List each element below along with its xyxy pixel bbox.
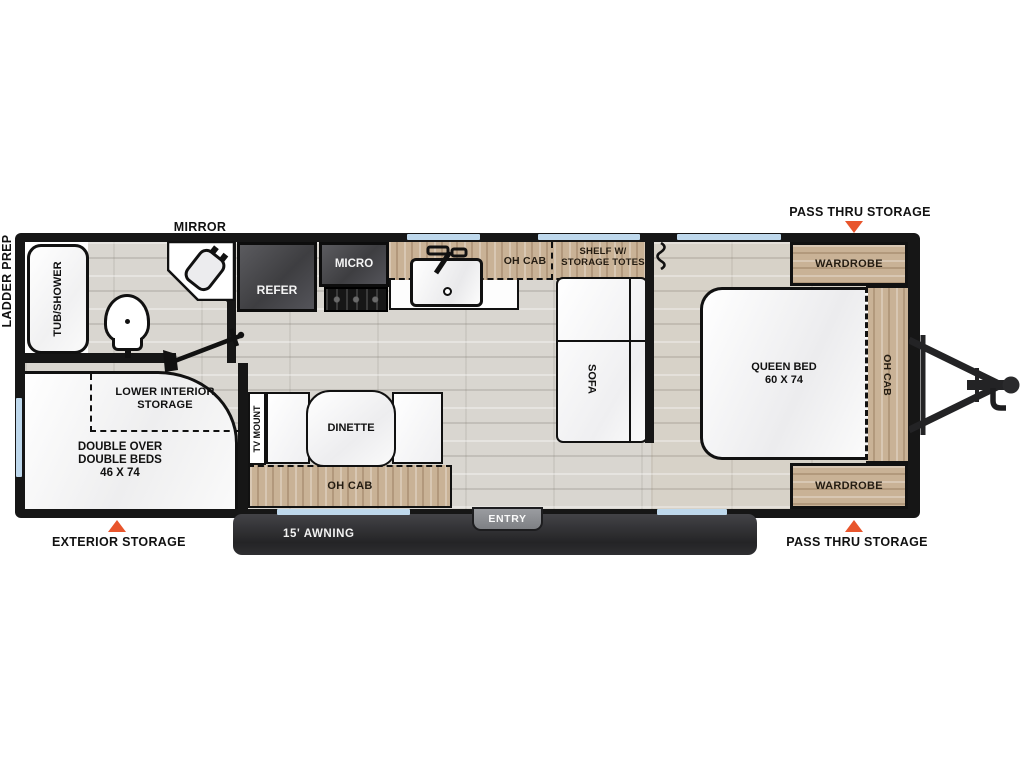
window-dinette	[277, 509, 410, 515]
kitchen-faucet-icon	[424, 243, 470, 275]
lower-interior-storage-label: LOWER INTERIOR STORAGE	[92, 386, 238, 411]
window-sofa	[538, 234, 640, 240]
tub-shower-label: TUB/SHOWER	[52, 261, 65, 336]
queen-bed-size: 60 X 74	[765, 374, 803, 387]
toilet	[104, 294, 150, 344]
queen-bed-label: QUEEN BED	[751, 361, 816, 374]
tv-mount: TV MOUNT	[248, 392, 266, 465]
tub-shower: TUB/SHOWER	[27, 244, 89, 354]
sofa: SOFA	[556, 277, 648, 443]
storage-marker-bottom-icon	[845, 520, 863, 532]
microwave: MICRO	[319, 242, 389, 287]
queen-bed: QUEEN BED 60 X 74	[700, 287, 868, 460]
pass-thru-storage-top-label: PASS THRU STORAGE	[760, 205, 960, 219]
refrigerator-label: REFER	[257, 283, 298, 297]
bedroom-oh-cab-label: OH CAB	[881, 354, 893, 395]
awning-label: 15' AWNING	[283, 528, 355, 540]
bunk-bed-size: 46 X 74	[35, 467, 205, 480]
bedroom-oh-cab: OH CAB	[866, 286, 908, 463]
dinette-bench-right	[392, 392, 443, 464]
pass-thru-storage-bottom-label: PASS THRU STORAGE	[757, 535, 957, 549]
bedroom-divider-wall	[645, 242, 654, 443]
exterior-storage-label: EXTERIOR STORAGE	[52, 535, 182, 549]
toilet-base	[112, 338, 143, 351]
bathroom-lower-wall	[15, 353, 176, 363]
shelf-totes-label: SHELF W/ STORAGE TOTES	[556, 246, 650, 268]
wardrobe-front-label: WARDROBE	[815, 480, 883, 493]
storage-marker-exterior-icon	[108, 520, 126, 532]
entry-door: ENTRY	[472, 507, 543, 531]
ladder-prep-label: LADDER PREP	[0, 229, 14, 333]
bunk-bed-label: DOUBLE OVER DOUBLE BEDS	[56, 441, 184, 467]
bunk-bed-caption: DOUBLE OVER DOUBLE BEDS 46 X 74	[35, 441, 205, 480]
bathroom-door	[160, 324, 252, 376]
window-bedroom-front	[657, 509, 727, 515]
bathroom-corner-sink	[167, 241, 235, 301]
entry-label: ENTRY	[488, 513, 526, 525]
floorplan: PASS THRU STORAGE MIRROR LADDER PREP EXT…	[0, 0, 1024, 768]
dinette-oh-cab-label: OH CAB	[327, 480, 372, 493]
window-bunk	[16, 398, 22, 477]
cooktop	[324, 287, 388, 312]
dinette-bench-left	[266, 392, 310, 464]
wardrobe-front: WARDROBE	[790, 463, 908, 509]
window-bedroom-rear	[677, 234, 781, 240]
microwave-label: MICRO	[335, 258, 373, 271]
window-kitchen	[407, 234, 480, 240]
mirror-label: MIRROR	[150, 220, 250, 234]
tv-mount-label: TV MOUNT	[252, 405, 262, 452]
lower-interior-storage: LOWER INTERIOR STORAGE	[90, 374, 240, 432]
dinette-oh-cab: OH CAB	[248, 465, 452, 508]
privacy-curtain-icon	[652, 242, 670, 270]
sofa-label: SOFA	[585, 364, 598, 394]
wardrobe-rear-label: WARDROBE	[815, 258, 883, 271]
dinette-table: DINETTE	[306, 390, 396, 467]
dinette-label: DINETTE	[327, 422, 374, 435]
refrigerator: REFER	[237, 242, 317, 312]
trailer-hitch	[909, 332, 1023, 438]
toilet-drain	[125, 351, 131, 358]
storage-marker-top-icon	[845, 221, 863, 233]
wardrobe-rear: WARDROBE	[790, 242, 908, 286]
kitchen-oh-cab-label: OH CAB	[496, 255, 554, 267]
